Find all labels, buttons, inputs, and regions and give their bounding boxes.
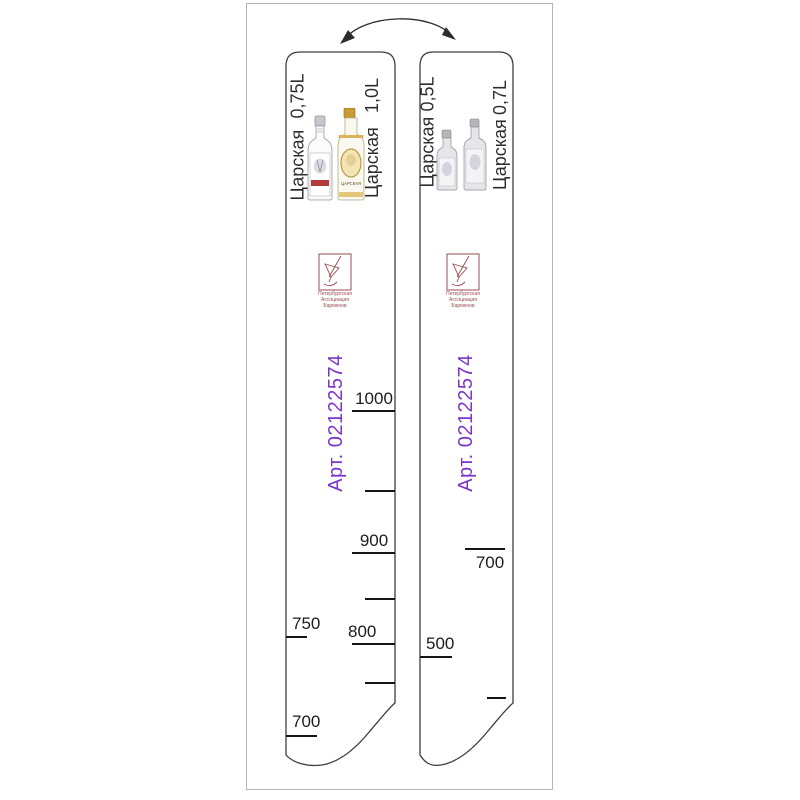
volume-text: 0,5L bbox=[419, 77, 437, 112]
minor-tick bbox=[365, 490, 395, 492]
volume-text: 0,7L bbox=[491, 80, 509, 115]
brand-text: Царская bbox=[491, 119, 509, 190]
bottle-images-right-strip bbox=[433, 116, 490, 192]
cocktail-glass-icon bbox=[446, 253, 480, 291]
strips-outline-layer bbox=[0, 0, 800, 800]
bottle-label-text: ЦАРСКАЯ bbox=[341, 181, 361, 186]
volume-text: 0,75L bbox=[289, 74, 307, 119]
scale-tick-label: 750 bbox=[292, 615, 322, 632]
vodka-bottle-gold-icon: ЦАРСКАЯ bbox=[338, 108, 364, 200]
vodka-bottle-white-icon bbox=[308, 116, 332, 200]
scale-tick-label: 1000 bbox=[354, 390, 394, 407]
scale-tick-label: 900 bbox=[354, 532, 394, 549]
brand-text: Царская bbox=[289, 130, 307, 201]
article-number: Арт. 02122574 bbox=[454, 353, 478, 493]
major-tick bbox=[352, 410, 395, 412]
logo-text-line: Барменов bbox=[311, 303, 359, 309]
major-tick bbox=[352, 643, 395, 645]
flip-arrow-icon bbox=[340, 19, 456, 44]
cocktail-glass-icon bbox=[318, 253, 352, 291]
major-tick bbox=[465, 548, 505, 550]
major-tick bbox=[286, 636, 307, 638]
major-tick bbox=[420, 656, 452, 658]
minor-tick bbox=[487, 697, 506, 699]
major-tick bbox=[286, 735, 317, 737]
vodka-bottle-clear-small-icon bbox=[437, 130, 457, 190]
logo-text-line: Барменов bbox=[439, 303, 487, 309]
scale-tick-label: 500 bbox=[426, 635, 456, 652]
scale-tick-label: 700 bbox=[292, 713, 322, 730]
scale-tick-label: 700 bbox=[474, 554, 506, 571]
scale-tick-label: 800 bbox=[348, 623, 380, 640]
bottle-images-left-strip: ЦАРСКАЯ bbox=[305, 108, 367, 203]
minor-tick bbox=[365, 682, 395, 684]
strip-right-label-07: Царская 0,7L bbox=[489, 80, 511, 190]
vodka-bottle-clear-large-icon bbox=[464, 119, 486, 190]
article-number: Арт. 02122574 bbox=[324, 353, 348, 493]
bartender-association-logo: Петербургская Ассоциация Барменов bbox=[439, 253, 487, 309]
product-image: Царская 0,75L Царская 1,0L ЦАРСКАЯ bbox=[0, 0, 800, 800]
bartender-association-logo: Петербургская Ассоциация Барменов bbox=[311, 253, 359, 309]
major-tick bbox=[352, 552, 395, 554]
minor-tick bbox=[365, 598, 395, 600]
